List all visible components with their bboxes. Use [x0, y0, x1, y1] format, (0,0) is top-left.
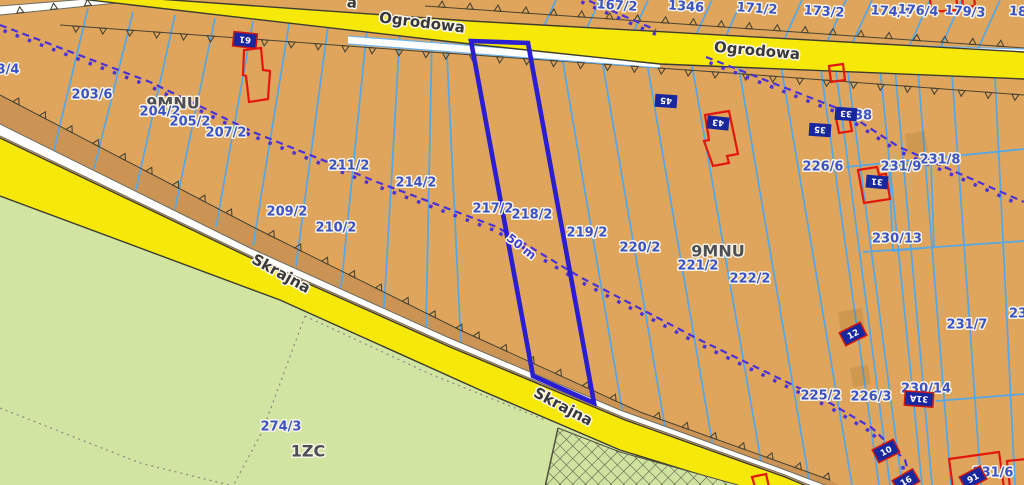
house-number-marker: 31	[865, 175, 888, 190]
parcel-number-label: 209/2	[267, 205, 308, 220]
parcel-number-label: 171/2	[736, 0, 778, 18]
parcel-number-label: 231/8	[920, 153, 961, 168]
parcel-number-label: 230/13	[872, 232, 922, 247]
house-number-marker: 45	[655, 94, 678, 109]
parcel-number-label: 18	[1008, 4, 1024, 20]
parcel-number-label: 205/2	[170, 115, 211, 130]
house-number-text: 31	[871, 176, 884, 187]
house-number-marker: 61	[232, 31, 259, 50]
house-number-text: 33	[840, 108, 853, 119]
house-number-text: 35	[814, 124, 827, 135]
parcel-number-label: 219/2	[567, 226, 608, 241]
house-number-marker: 43	[706, 115, 729, 130]
house-number-marker: 33	[835, 107, 858, 122]
parcel-number-label: 203/6	[72, 88, 113, 103]
parcel-number-label: 210/2	[316, 221, 357, 236]
parcel-number-label: 231/7	[947, 318, 988, 333]
parcel-number-label: 214/2	[396, 176, 437, 191]
parcel-number-label: 207/2	[206, 126, 247, 141]
parcel-number-label: 1346	[667, 0, 704, 16]
house-number-text: 31A	[909, 392, 928, 403]
parcel-number-label: 3/4	[0, 63, 19, 78]
parcel-number-label: 221/2	[678, 259, 719, 274]
parcel-number-label: 173/2	[803, 3, 845, 21]
house-number-marker: 31A	[903, 390, 934, 408]
parcel-number-label: 226/3	[851, 390, 892, 405]
parcel-number-label: 231/9	[881, 160, 922, 175]
house-number-marker: 35	[809, 123, 832, 138]
map-canvas[interactable]: OgrodowaOgrodowaSkrajnaSkrajnaa9MNU9MNU1…	[0, 0, 1024, 485]
parcel-number-label: 211/2	[329, 159, 370, 174]
parcel-number-label: 179/3	[944, 3, 986, 21]
parcel-number-label: 222/2	[730, 272, 771, 287]
parcel-number-label: 274/3	[261, 420, 302, 435]
parcel-number-label: 226/6	[803, 160, 844, 175]
parcel-number-label: 218/2	[512, 208, 553, 223]
parcel-number-label: 217/2	[473, 202, 514, 217]
parcel-number-label: 225/2	[801, 389, 842, 404]
house-number-text: 43	[712, 116, 725, 127]
parcel-number-label: 176/4	[897, 2, 939, 20]
parcel-number-label: 220/2	[620, 241, 661, 256]
zone-code-label: 1ZC	[291, 442, 325, 461]
parcel-number-label: 23	[1009, 307, 1024, 322]
house-number-text: 45	[660, 95, 673, 106]
house-number-text: 61	[239, 33, 252, 44]
